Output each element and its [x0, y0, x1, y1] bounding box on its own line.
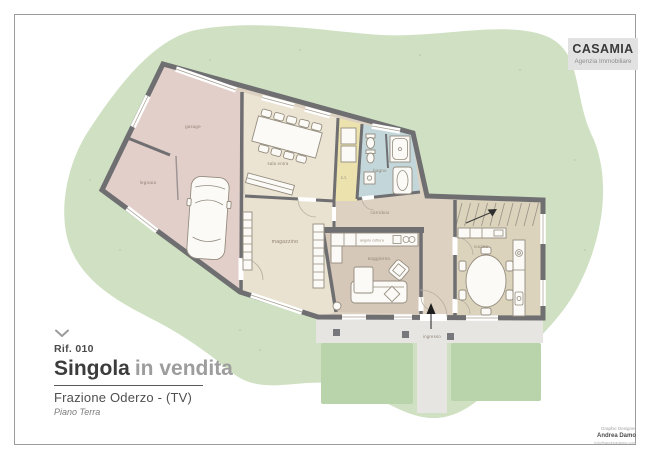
listing-title-sub: in vendita — [135, 357, 233, 380]
designer-credits: Graphic Designer Andrea Damo info@andrea… — [594, 426, 636, 446]
flyer-page: angolo cottura — [0, 0, 650, 459]
listing-location: Frazione Oderzo - (TV) — [54, 390, 233, 405]
listing-floor: Piano Terra — [54, 407, 233, 417]
agency-logo: CASAMIA Agenzia Immobiliare — [568, 38, 638, 70]
listing-title: Singolain vendita — [54, 357, 233, 381]
chevron-down-icon — [54, 329, 70, 338]
agency-logo-name: CASAMIA — [572, 43, 633, 56]
designer-name: Andrea Damo — [594, 432, 636, 440]
title-divider — [54, 385, 203, 386]
listing-title-main: Singola — [54, 357, 130, 380]
agency-logo-subtitle: Agenzia Immobiliare — [574, 58, 631, 65]
listing-info: Rif. 010 Singolain vendita Frazione Oder… — [54, 329, 233, 417]
designer-contact: info@andreadamo.com — [594, 440, 636, 445]
listing-reference: Rif. 010 — [54, 343, 233, 355]
